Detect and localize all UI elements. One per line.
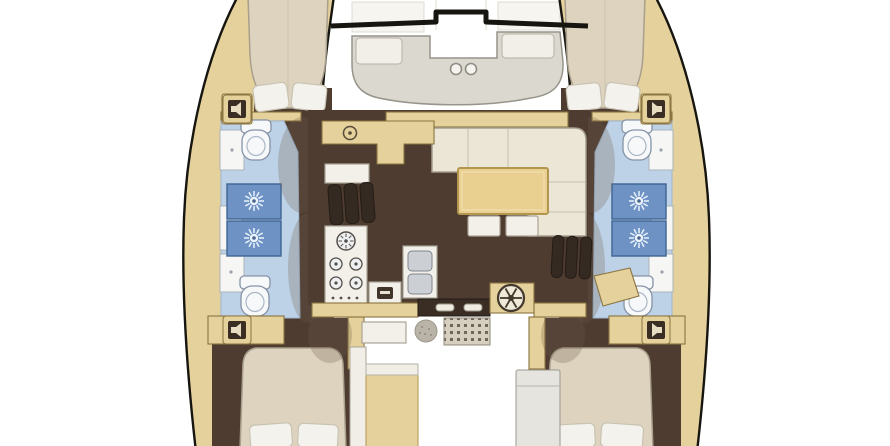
counter-sink-dot — [348, 131, 352, 135]
cockpit-speaker-grille-icon — [415, 320, 437, 342]
oven-icon — [337, 232, 355, 250]
appliance-handle — [380, 291, 390, 294]
burner-icon — [350, 258, 362, 270]
ottoman-stool — [506, 216, 538, 236]
cup-holder-icon — [466, 64, 477, 75]
sink-basin — [408, 274, 432, 294]
cockpit-table — [516, 370, 560, 446]
sink-basin — [408, 251, 432, 271]
salon-table — [458, 168, 548, 214]
bench-cushion — [356, 38, 402, 64]
cockpit-bench-rim — [366, 364, 418, 375]
burner-icon — [330, 258, 342, 270]
starboard-companionway-steps — [551, 235, 592, 279]
floorplan-canvas — [0, 0, 890, 446]
aft-wall-band-starboard — [534, 303, 586, 317]
catamaran-floorplan — [0, 0, 890, 446]
galley-cabinet — [325, 164, 369, 183]
cockpit-seat — [362, 322, 406, 343]
cockpit-bench — [366, 364, 418, 446]
sliding-door-handle[interactable] — [436, 304, 454, 311]
burner-icon — [350, 277, 362, 289]
cup-holder-icon — [451, 64, 462, 75]
port-companionway-steps — [328, 182, 376, 225]
helm-wheel-icon — [498, 285, 524, 311]
cockpit-grate — [444, 318, 490, 345]
cockpit-bench-back — [350, 347, 366, 446]
burner-icon — [330, 277, 342, 289]
aft-wall-band-port — [312, 303, 418, 317]
bench-cushion — [502, 34, 554, 58]
ottoman-stool — [468, 216, 500, 236]
foredeck-locker — [352, 2, 424, 32]
sliding-door-handle[interactable] — [464, 304, 482, 311]
